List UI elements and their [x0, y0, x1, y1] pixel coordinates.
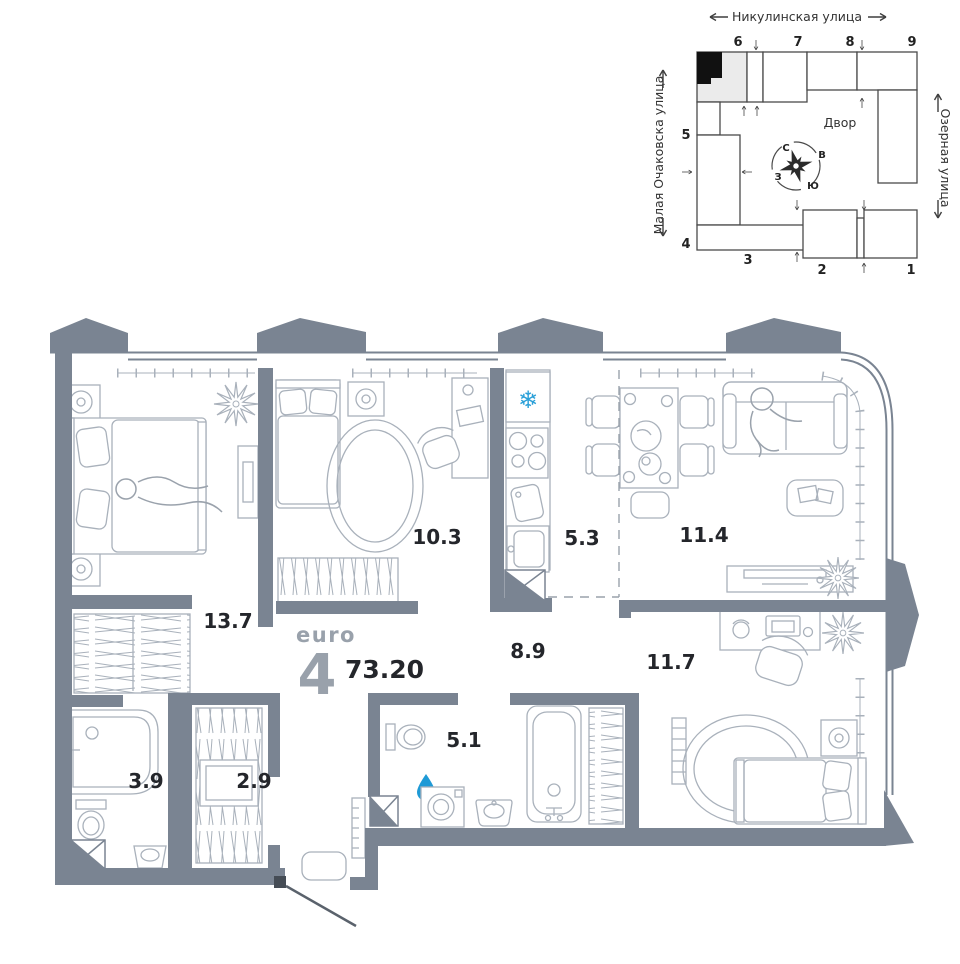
single-bed [276, 380, 340, 508]
street-right-label: Озерная улица [938, 108, 953, 207]
compass-north-label: С [782, 143, 789, 154]
toilet [386, 724, 425, 750]
bay-window [257, 318, 366, 352]
closet-hangers [589, 708, 623, 824]
vent-shaft [370, 796, 398, 826]
area-wardrobe: 2.9 [236, 769, 271, 793]
plant-icon [822, 612, 864, 654]
kitchen-block: ❄ [506, 370, 550, 572]
svg-text:1: 1 [906, 263, 915, 278]
svg-text:2: 2 [817, 263, 826, 278]
site-plan: Никулинская улица Малая Очаковска улица … [651, 9, 953, 278]
cutting-board [510, 483, 544, 522]
plant-icon [214, 382, 258, 426]
coffee-table [787, 480, 843, 516]
bay-window [498, 318, 603, 352]
svg-text:8: 8 [845, 35, 854, 50]
doormat [302, 852, 346, 880]
compass-east-label: В [818, 150, 826, 161]
wardrobe-low [278, 558, 398, 602]
compass-south-label: Ю [807, 181, 819, 192]
street-top-label: Никулинская улица [732, 9, 862, 24]
site-buildings-outline [697, 52, 917, 258]
dresser [238, 446, 258, 518]
pedestal-sink [134, 846, 166, 868]
street-top-arrow-right-icon [868, 14, 886, 21]
street-left-label: Малая Очаковска улица [651, 76, 666, 235]
svg-text:4: 4 [681, 237, 690, 252]
dining-table-with-chairs [586, 388, 714, 518]
area-bathroom-1: 3.9 [128, 769, 163, 793]
sofa [723, 382, 847, 457]
floor-plan: ❄ [50, 318, 919, 926]
bay-window [886, 558, 919, 672]
single-bed [734, 758, 866, 824]
double-bed [64, 418, 222, 554]
compass-rose-icon: С В З Ю [767, 137, 826, 196]
bay-window [50, 318, 128, 352]
nightstand-with-lamp [821, 720, 857, 756]
vent-shaft [505, 570, 545, 600]
svg-text:6: 6 [733, 35, 742, 50]
apartment-plan-page: Никулинская улица Малая Очаковска улица … [0, 0, 960, 960]
area-bathroom-2: 5.1 [446, 728, 481, 752]
street-top-arrow-left-icon [710, 14, 728, 21]
entry-shelf [352, 798, 365, 858]
pedestal-sink [476, 800, 512, 826]
corner-bevel [884, 790, 914, 846]
area-bedroom-1: 13.7 [203, 609, 252, 633]
rooms-count-label: 4 [298, 643, 337, 708]
svg-text:3: 3 [743, 253, 752, 268]
area-hall: 8.9 [510, 639, 545, 663]
kitchen-sink [507, 526, 549, 572]
fridge-snowflake-icon: ❄ [518, 386, 538, 414]
area-kitchen: 5.3 [564, 526, 599, 550]
area-living: 11.4 [679, 523, 728, 547]
svg-text:9: 9 [907, 35, 916, 50]
entry-door-swing [286, 886, 356, 926]
hall-wardrobe [74, 614, 190, 693]
toilet [76, 800, 106, 839]
nightstand-with-lamp [348, 382, 384, 416]
desk-with-chair [415, 378, 488, 478]
bay-window [726, 318, 841, 352]
courtyard-label: Двор [824, 115, 857, 130]
rug-oval [327, 420, 423, 552]
area-bedroom-3: 11.7 [646, 650, 695, 674]
washing-machine [421, 787, 464, 827]
total-area-label: 73.20 [345, 655, 424, 684]
vent-shaft [72, 840, 105, 868]
compass-west-label: З [774, 172, 781, 183]
desk-with-chair [720, 608, 820, 689]
svg-text:7: 7 [793, 35, 802, 50]
bathtub [527, 706, 581, 822]
svg-text:5: 5 [681, 128, 690, 143]
area-bedroom-2: 10.3 [412, 525, 461, 549]
